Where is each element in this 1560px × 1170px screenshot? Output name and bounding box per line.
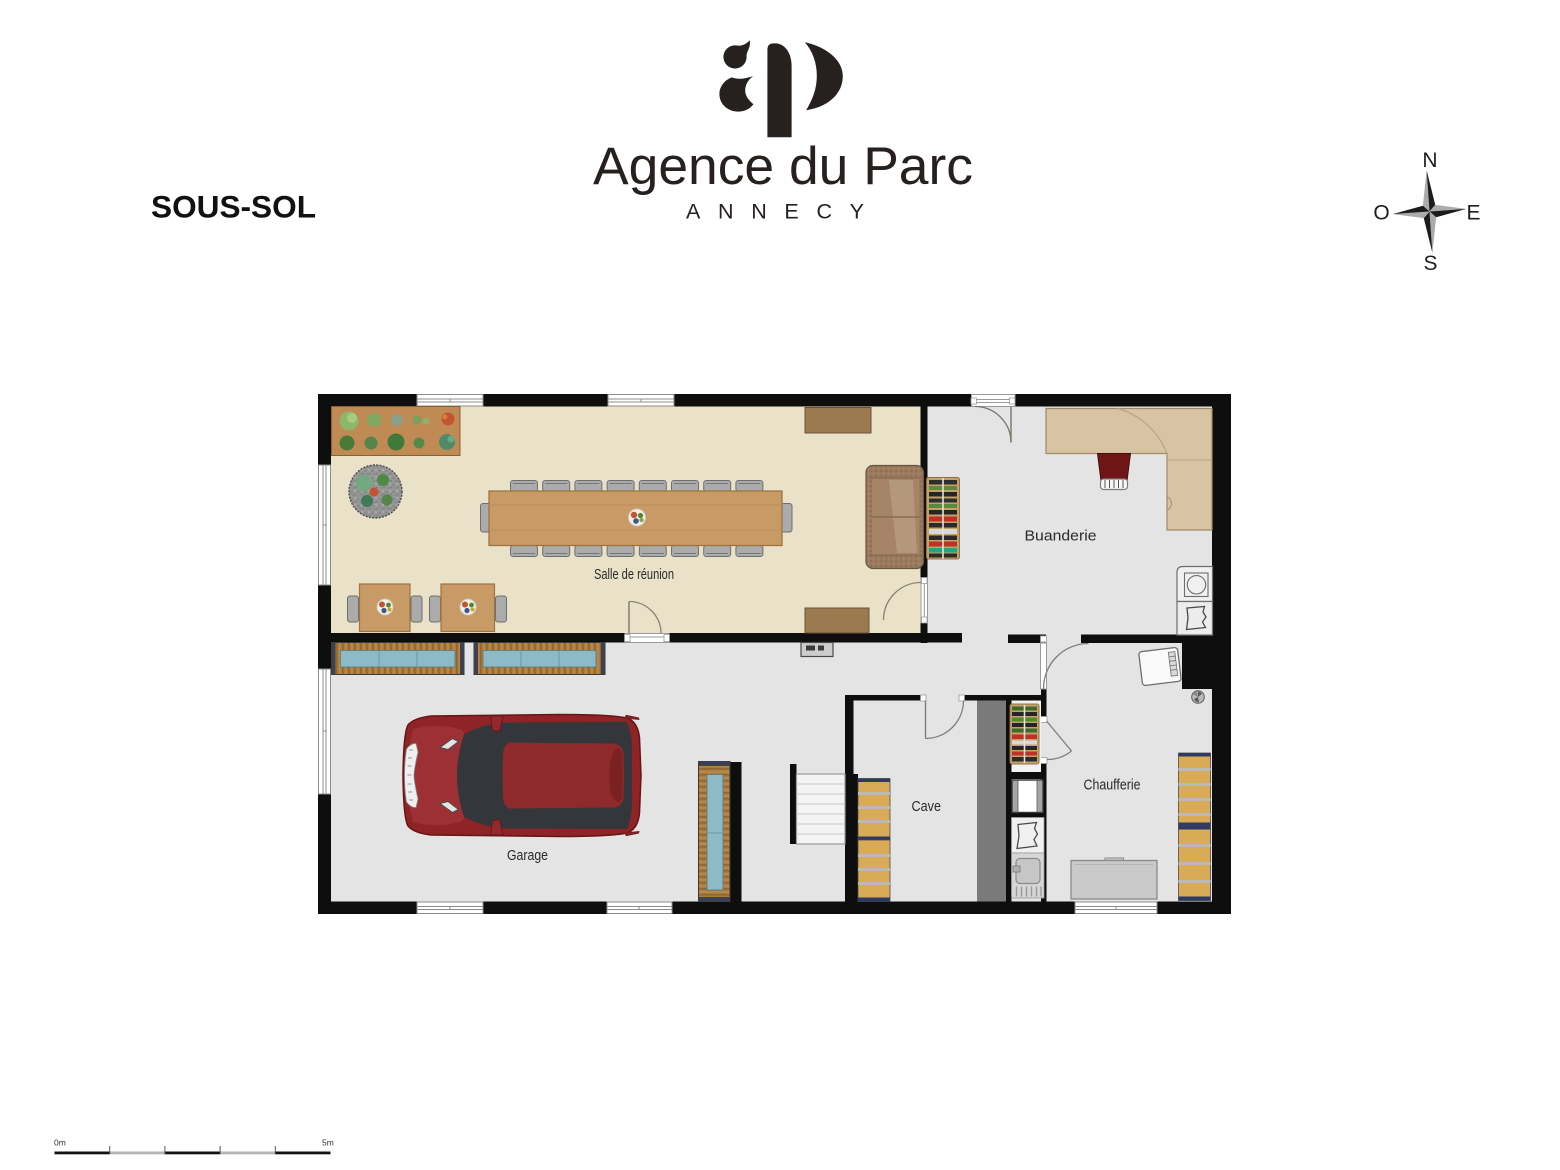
svg-text:Garage: Garage [507, 848, 548, 864]
svg-text:0m: 0m [54, 1138, 66, 1148]
svg-text:Buanderie: Buanderie [1025, 529, 1097, 545]
svg-text:Chaufferie: Chaufferie [1084, 778, 1141, 794]
svg-text:N: N [1422, 149, 1437, 172]
svg-text:Salle de réunion: Salle de réunion [594, 567, 674, 583]
svg-text:ANNECY: ANNECY [686, 200, 864, 224]
svg-text:S: S [1423, 252, 1437, 275]
svg-text:SOUS-SOL: SOUS-SOL [151, 189, 316, 225]
svg-text:Cave: Cave [912, 799, 942, 815]
svg-text:5m: 5m [322, 1138, 334, 1148]
svg-text:O: O [1373, 202, 1389, 225]
svg-text:Agence du Parc: Agence du Parc [593, 137, 973, 196]
svg-text:E: E [1466, 202, 1480, 225]
